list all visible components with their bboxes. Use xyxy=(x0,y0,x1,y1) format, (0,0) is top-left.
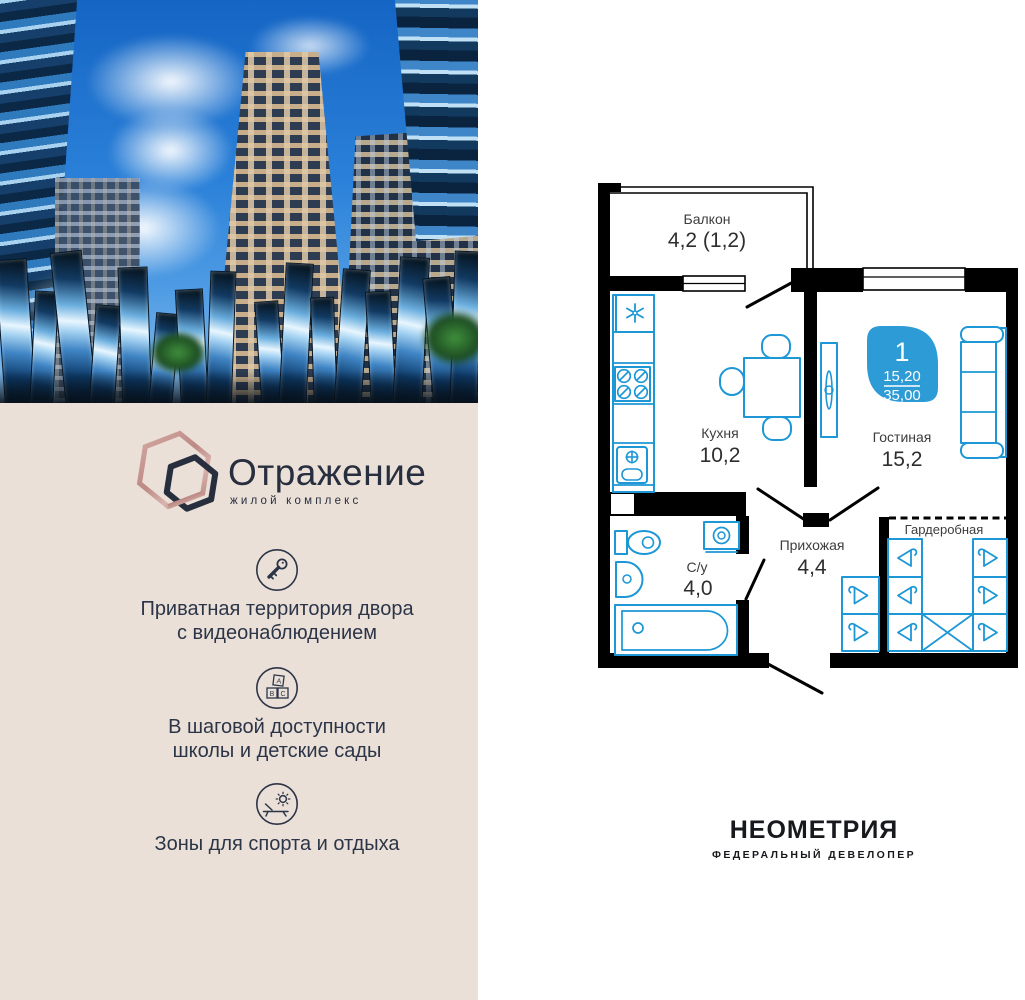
feature-security: Приватная территория двора с видеонаблюд… xyxy=(76,548,478,645)
developer-name: НЕОМЕТРИЯ xyxy=(680,816,948,845)
feature-line: В шаговой доступности xyxy=(76,715,478,739)
brand-subtitle: жилой комплекс xyxy=(230,495,361,507)
room-area-hall: 4,4 xyxy=(797,556,827,579)
wardrobe-shelves xyxy=(842,539,1007,651)
balcony-outline xyxy=(610,187,813,269)
developer-logo: НЕОМЕТРИЯ ФЕДЕРАЛЬНЫЙ ДЕВЕЛОПЕР xyxy=(680,816,948,861)
photo-ground-shadow xyxy=(0,371,478,403)
bathroom-door-line xyxy=(746,560,764,599)
abc-blocks-icon: A B C xyxy=(255,666,299,710)
tv-stand xyxy=(821,343,837,437)
room-label-bathroom: С/у xyxy=(687,559,708,575)
bathtub-icon xyxy=(615,605,737,655)
fridge-icon xyxy=(616,295,654,332)
brand-name: Отражение xyxy=(228,452,426,494)
balcony-door-line xyxy=(747,281,795,307)
room-area-living: 15,2 xyxy=(882,448,923,471)
room-label-kitchen: Кухня xyxy=(701,425,738,441)
room-area-balcony: 4,2 (1,2) xyxy=(668,229,746,252)
area-badge: 1 15,20 35,00 xyxy=(867,326,938,404)
window-living xyxy=(863,268,965,290)
key-icon xyxy=(255,548,299,592)
block-letter-b: B xyxy=(270,691,275,698)
living-door-line xyxy=(830,488,878,520)
entrance-door-line xyxy=(768,664,822,693)
chair xyxy=(720,368,744,395)
tree xyxy=(148,330,208,375)
sofa xyxy=(961,327,1006,458)
chair xyxy=(763,417,791,440)
chair xyxy=(762,335,790,358)
bathroom-sink-icon xyxy=(616,562,643,597)
walls xyxy=(598,183,1018,668)
kitchen-sink-icon xyxy=(617,447,647,483)
feature-line: Зоны для спорта и отдыха xyxy=(76,832,478,856)
brand-logo-hexagons xyxy=(130,430,230,520)
block-letter-c: C xyxy=(280,691,285,698)
feature-line: с видеонаблюдением xyxy=(76,621,478,645)
feature-recreation: Зоны для спорта и отдыха xyxy=(76,782,478,856)
feature-line: школы и детские сады xyxy=(76,739,478,763)
room-label-living: Гостиная xyxy=(873,429,932,445)
room-label-hall: Прихожая xyxy=(780,537,845,553)
window-balcony xyxy=(683,276,745,291)
crossed-box xyxy=(922,614,973,651)
room-area-kitchen: 10,2 xyxy=(700,444,741,467)
building-photo xyxy=(0,0,478,403)
developer-tagline: ФЕДЕРАЛЬНЫЙ ДЕВЕЛОПЕР xyxy=(680,849,948,861)
floor-plan: 1 15,20 35,00 Балкон 4,2 (1,2) Кухня 10,… xyxy=(597,176,1022,701)
room-area-bathroom: 4,0 xyxy=(683,577,712,600)
feature-schools: A B C В шаговой доступности школы и детс… xyxy=(76,666,478,763)
toilet-icon xyxy=(615,531,660,554)
badge-rooms-count: 1 xyxy=(894,337,909,367)
feature-line: Приватная территория двора xyxy=(76,597,478,621)
lounge-sun-icon xyxy=(255,782,299,826)
kitchen-door-line xyxy=(758,489,805,520)
badge-living-area: 15,20 xyxy=(883,368,921,385)
wall-niche xyxy=(611,494,634,514)
washing-machine-icon xyxy=(704,522,739,552)
stove-icon xyxy=(615,367,650,401)
room-label-balcony: Балкон xyxy=(684,211,731,227)
room-label-wardrobe: Гардеробная xyxy=(905,522,984,537)
flyer-page: Отражение жилой комплекс Приватная терри… xyxy=(0,0,1025,1000)
badge-total-area: 35,00 xyxy=(883,387,921,404)
block-letter-a: A xyxy=(276,678,282,686)
